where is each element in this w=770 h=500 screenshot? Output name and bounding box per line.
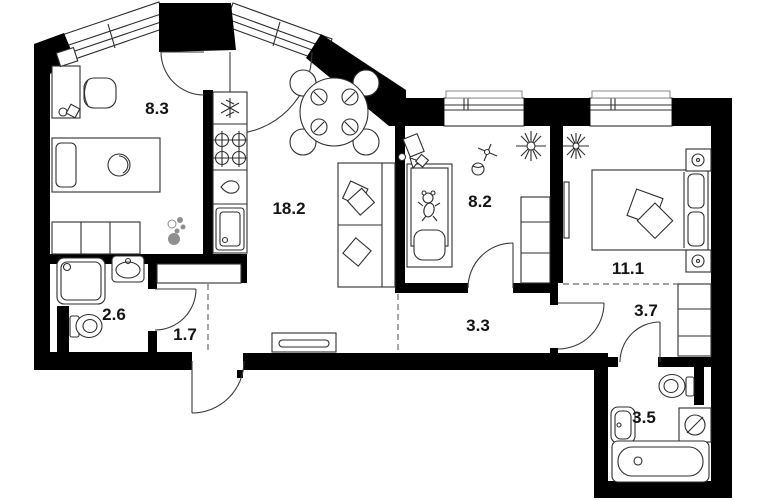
wardrobe-icon: [678, 284, 711, 356]
toilet-icon: [70, 315, 102, 338]
window-bedroom-right: [590, 91, 672, 126]
room-area-label: 8.2: [468, 192, 492, 211]
double-bed-icon: [592, 170, 708, 250]
wall-mirror-icon: [564, 182, 569, 238]
wall-top-a: [395, 98, 444, 126]
room-area-label: 3.5: [632, 408, 656, 427]
potted-plant-icon: [168, 217, 186, 245]
wall-kitchen: [203, 90, 213, 260]
room-area-label: 8.3: [145, 99, 169, 118]
bathtub-icon: [612, 441, 709, 482]
nightstand-icon: [686, 149, 711, 171]
door-bathroom: [620, 322, 660, 362]
wall-bottom-right: [596, 481, 732, 498]
wall-shower-hall-a: [148, 254, 157, 289]
duct-shower-room: [57, 306, 69, 352]
wall-bath-left: [594, 357, 608, 498]
wall-right: [711, 98, 732, 498]
room-area-label: 18.2: [272, 199, 305, 218]
door-inner-hall: [558, 303, 604, 349]
room-area-label: 3.3: [466, 316, 490, 335]
furniture-shower-room: [57, 256, 144, 338]
door-shower-room: [155, 289, 196, 330]
room-area-label: 1.7: [173, 325, 197, 344]
wall-bath-top-b: [658, 357, 712, 367]
washbasin-icon: [112, 256, 144, 282]
wall-children-bottom-a: [395, 283, 468, 293]
wall-closet-stub: [241, 263, 247, 283]
room-area-label: 3.7: [634, 301, 658, 320]
single-bed-icon: [52, 138, 160, 192]
kids-bed-icon: [407, 164, 452, 267]
door-bedroom-top-left: [161, 52, 204, 95]
shower-cabin-icon: [57, 258, 105, 304]
duct-bathroom: [694, 367, 704, 405]
wall-living-children: [395, 126, 405, 293]
floor-plan: 8.3 18.2 8.2 11.1 2.6 1.7 3.3 3.7 3.5: [0, 0, 770, 500]
room-area-label: 11.1: [612, 259, 644, 278]
door-entrance: [192, 361, 244, 413]
kitchen-block: [213, 92, 247, 253]
wall-shower-hall-b: [148, 331, 157, 354]
wall-peak: [159, 3, 236, 52]
bench-icon: [272, 333, 336, 352]
room-area-label: 2.6: [102, 305, 126, 324]
wall-bottom-left: [34, 352, 192, 370]
furniture-bedroom-right: [563, 133, 711, 272]
window-children-room: [444, 91, 524, 126]
nightstand-icon: [686, 250, 711, 272]
washing-machine-icon: [679, 408, 711, 442]
storage-cabinet-icon: [52, 222, 140, 254]
wall-corridor-hall-a: [550, 283, 558, 305]
flower-plant-icon: [516, 131, 546, 161]
wall-bath-top-a: [608, 357, 618, 367]
floor-plan-canvas: 8.3 18.2 8.2 11.1 2.6 1.7 3.3 3.7 3.5: [0, 0, 770, 500]
sofa-with-pillows-icon: [338, 163, 395, 287]
furniture-bedroom-top-left: [52, 48, 186, 254]
kitchen-sink-icon: [216, 208, 244, 250]
wall-children-bedroom: [550, 98, 563, 283]
hall-closet-icon: [157, 264, 241, 283]
flower-plant-icon: [563, 133, 589, 159]
dining-table-with-chairs-icon: [290, 70, 379, 155]
toilet-icon: [659, 375, 694, 398]
window-top-left: [62, 2, 165, 60]
wardrobe-icon: [521, 197, 550, 283]
wall-left: [34, 44, 50, 370]
office-chair-icon: [84, 78, 116, 108]
door-children-room: [468, 243, 513, 288]
wall-corridor-hall-b: [550, 348, 558, 356]
